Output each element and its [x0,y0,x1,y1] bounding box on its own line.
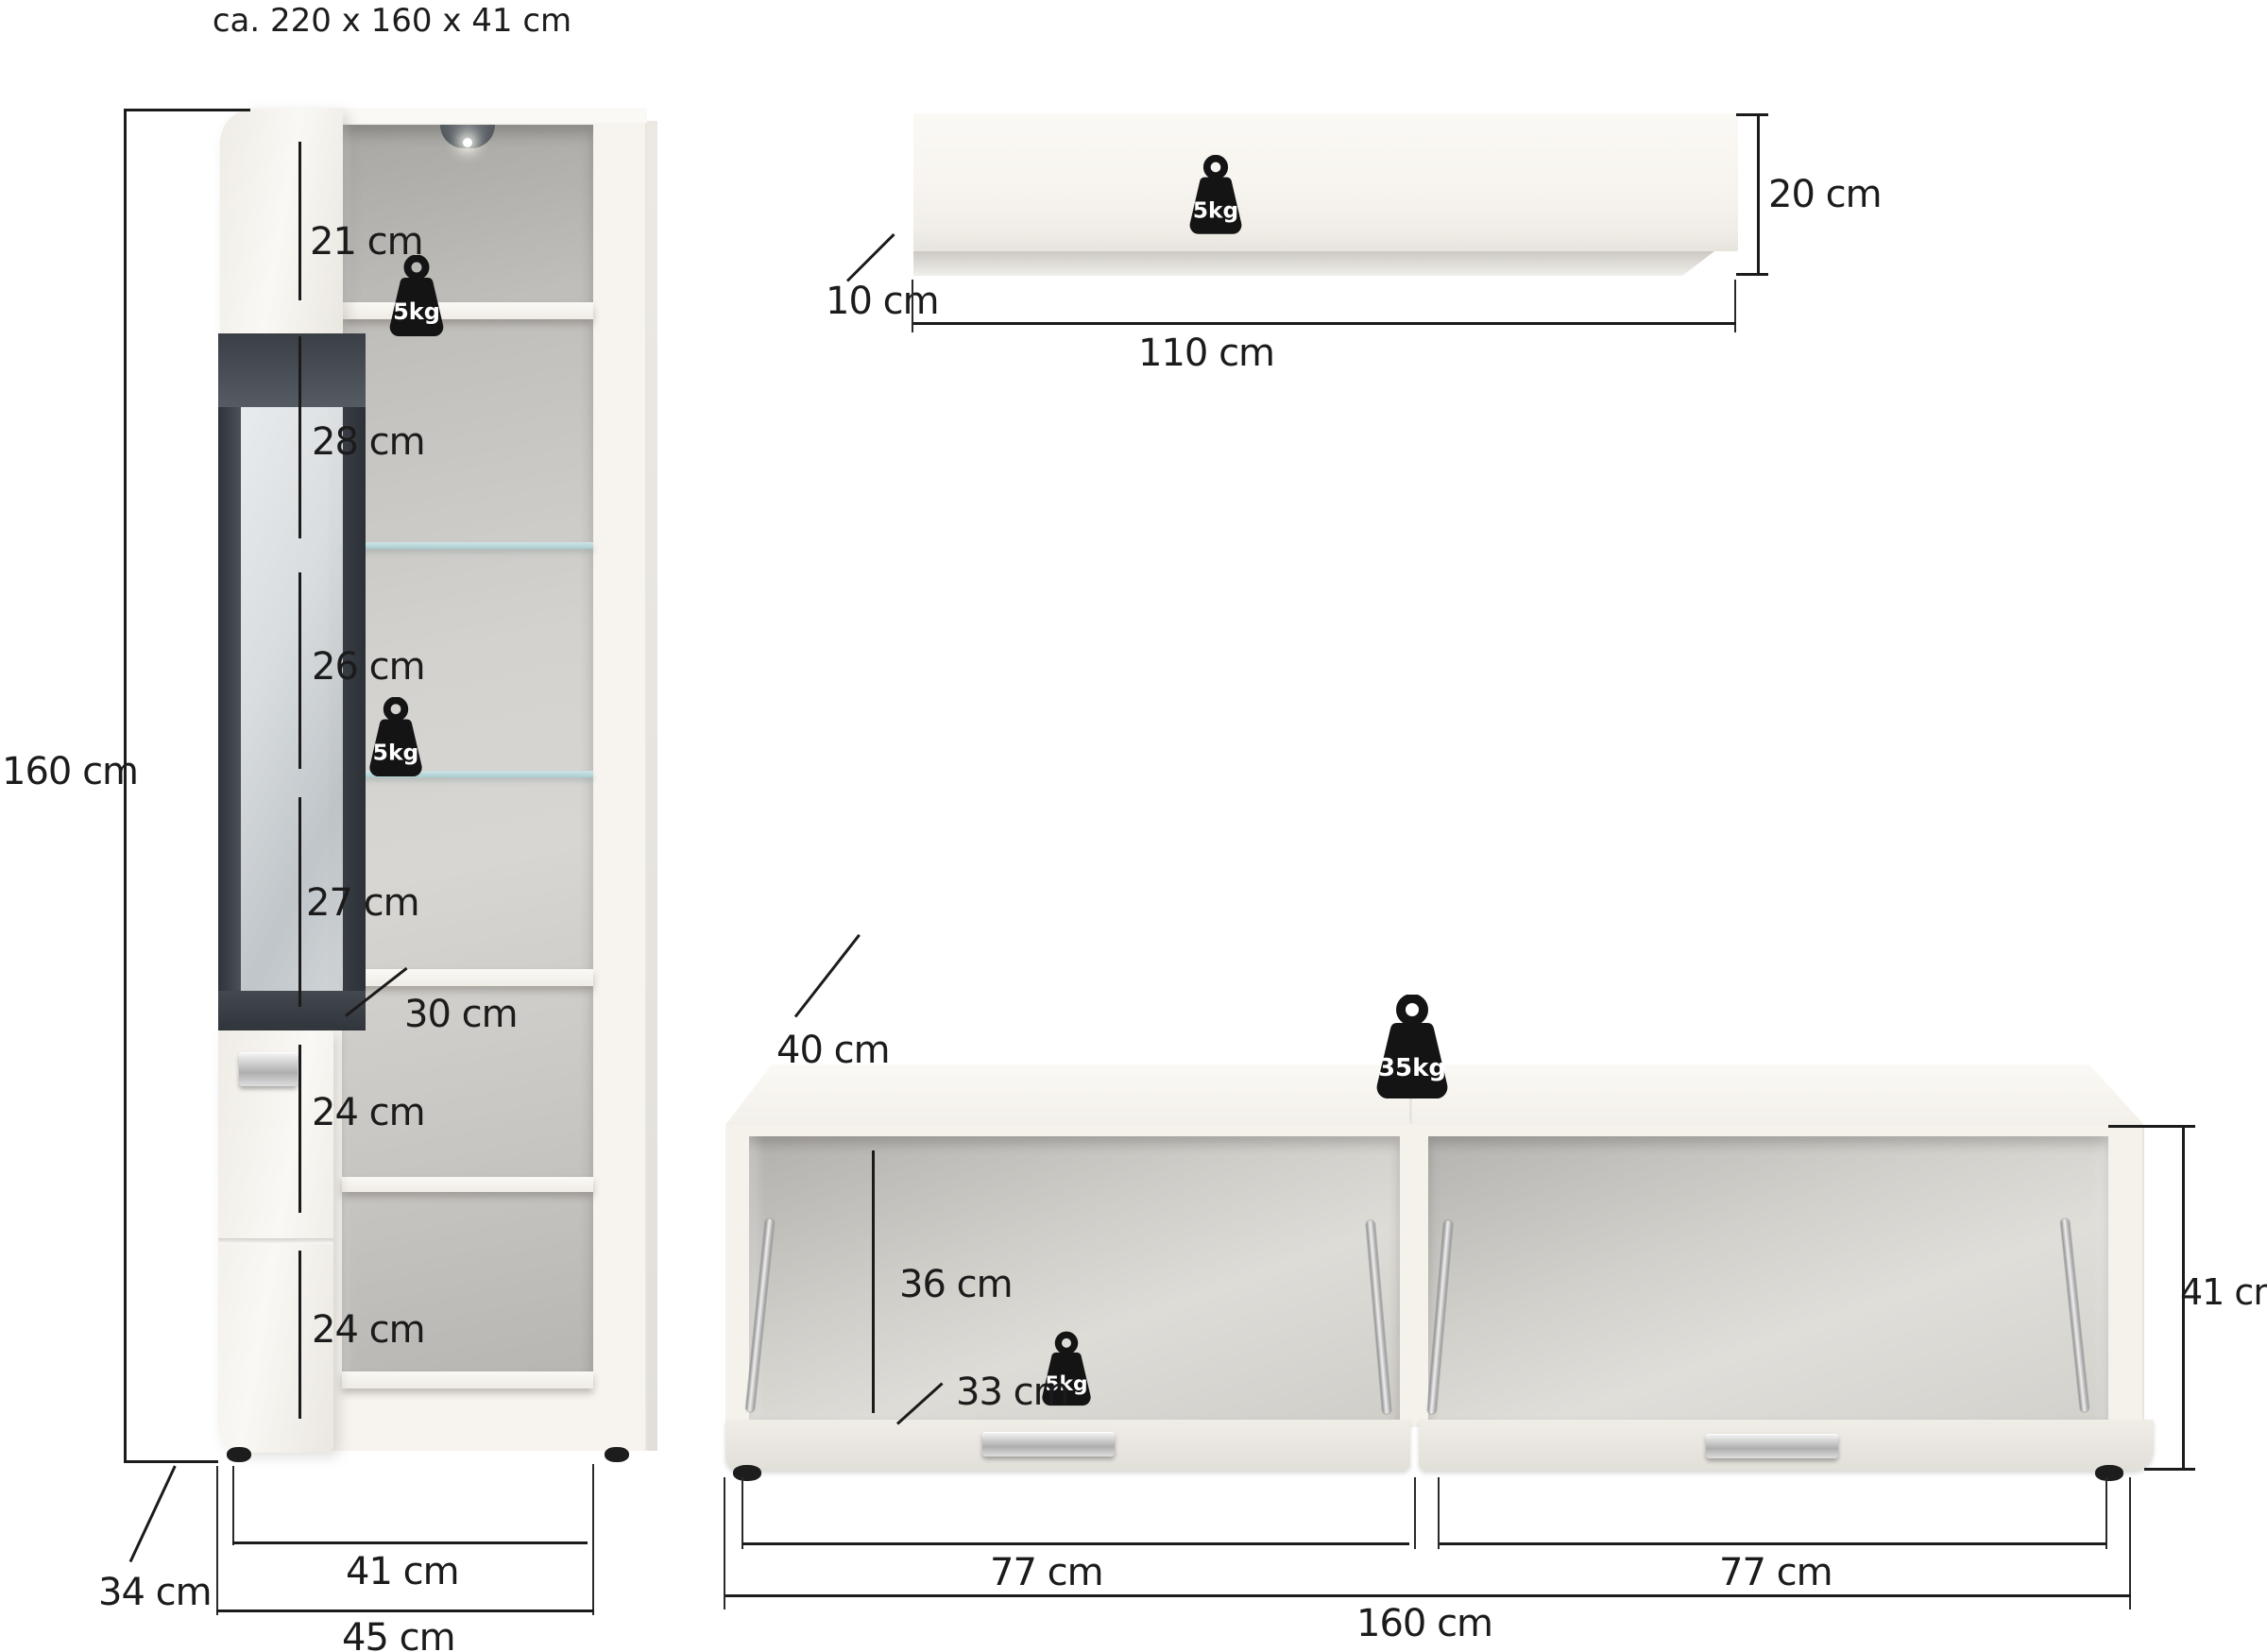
dim-arrow-77-right [1440,1542,2106,1545]
dim-arrow-24a [298,1045,301,1213]
furniture-dimension-diagram: ca. 220 x 160 x 41 cm 5kg 5kg [0,0,2267,1652]
dim-label-shelf-width: 110 cm [1138,332,1274,374]
dim-arrow-shelf-width [913,322,1736,325]
dim-arrow-77-left [742,1542,1409,1545]
cabinet-bottom-board [342,1371,593,1388]
cabinet-top-edge [329,108,647,123]
dim-label-inner-height: 36 cm [899,1264,1013,1305]
door-groove [218,1238,333,1244]
dim-arrow-27 [298,797,301,1007]
cabinet-shelf-1 [342,302,593,319]
lowboard-foot [2095,1465,2123,1481]
dim-arrow-shelf-height [1757,116,1760,275]
dim-label-lowboard-height: 41 cm [2180,1273,2267,1313]
dim-arrow-28 [298,336,301,538]
weight-label: 35kg [1378,1054,1446,1082]
dim-label-77-right: 77 cm [1719,1552,1832,1593]
led-glow-icon [463,138,472,147]
wall-shelf-body [913,113,1738,251]
lowboard-flap-handle [1706,1434,1838,1458]
dim-arrow-lowboard-width [725,1594,2131,1597]
cabinet-shelf-3 [342,1177,593,1192]
dim-label-26: 26 cm [312,646,425,688]
dim-label-lowboard-depth: 40 cm [776,1030,890,1071]
dim-label-flap-depth: 33 cm [956,1371,1069,1413]
cabinet-side-panel [647,121,657,1451]
dim-arrow-lowboard-depth [794,934,861,1018]
dim-arrow-inner-height [872,1150,875,1413]
dim-arrow-24b [298,1251,301,1419]
cabinet-foot [605,1447,629,1462]
dim-label-27: 27 cm [306,882,419,924]
dim-label-45-width: 45 cm [342,1617,455,1652]
weight-5kg-icon: 5kg [383,255,451,338]
cabinet-shelf-2 [342,969,593,986]
lowboard-flap-handle [982,1432,1115,1456]
dim-label-24a: 24 cm [312,1092,425,1133]
dim-extension [1414,1477,1416,1549]
lowboard-right-compartment [1428,1136,2108,1420]
dim-label-lowboard-width: 160 cm [1356,1603,1492,1644]
dim-arrow-shelf-depth [846,233,895,282]
dim-arrow-26 [298,572,301,769]
lowboard-foot [733,1465,761,1481]
cabinet-door-handle [239,1052,298,1086]
weight-5kg-icon: 5kg [362,697,430,778]
dim-arrow-21 [298,142,301,300]
dim-label-77-left: 77 cm [990,1552,1103,1593]
weight-35kg-icon: 35kg [1372,995,1453,1100]
dim-arrow-41-width [232,1541,588,1544]
dim-arrow-45-width [216,1609,594,1612]
dim-extension [216,1466,218,1615]
dim-label-24b: 24 cm [312,1309,425,1351]
dim-connector [124,109,250,111]
page-title: ca. 220 x 160 x 41 cm [161,2,623,40]
dim-label-cabinet-height: 160 cm [2,751,138,792]
weight-5kg-icon: 5kg [1186,155,1245,236]
wall-shelf-shadow [913,251,1714,276]
dim-extension [592,1464,594,1615]
cabinet-foot [227,1447,251,1462]
dim-label-41-width: 41 cm [346,1551,459,1592]
dim-connector [2144,1468,2195,1471]
weight-label: 5kg [373,739,419,765]
dim-label-shelf-height: 20 cm [1768,174,1882,215]
dim-extension [232,1466,234,1545]
weight-label: 5kg [393,298,440,325]
dim-label-34: 34 cm [98,1572,212,1613]
weight-label: 5kg [1193,197,1238,223]
cabinet-glass-shelf-1 [342,542,593,549]
dim-label-28: 28 cm [312,421,425,463]
dim-arrow-34-depth [129,1465,177,1562]
dim-label-30: 30 cm [404,994,518,1035]
dim-label-21: 21 cm [310,221,423,263]
glass-door-left-stile [218,333,241,1030]
